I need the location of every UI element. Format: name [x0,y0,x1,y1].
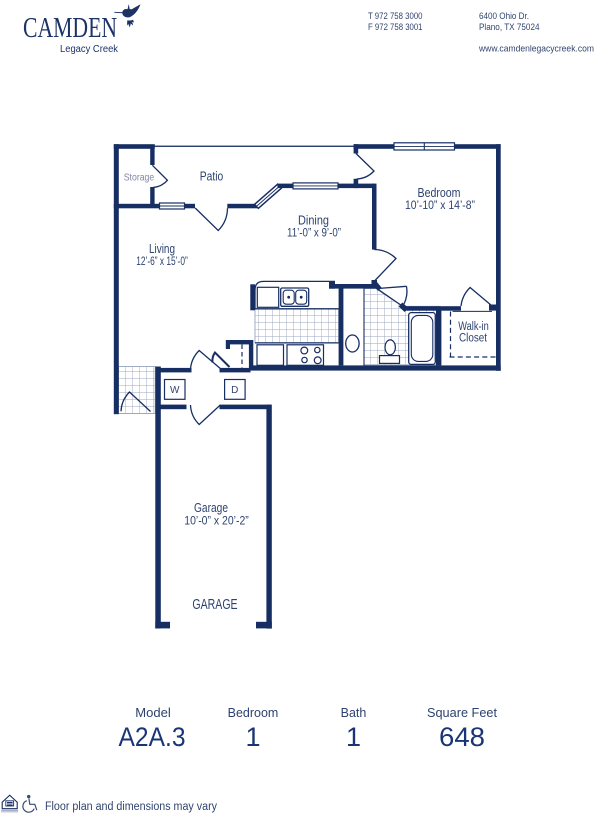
svg-text:T 972 758 3000: T 972 758 3000 [368,11,423,22]
svg-text:GARAGE: GARAGE [192,596,237,613]
svg-text:W: W [170,385,180,396]
svg-text:6400 Ohio Dr.: 6400 Ohio Dr. [479,11,529,22]
svg-text:Legacy Creek: Legacy Creek [60,44,119,55]
svg-text:F 972 758 3001: F 972 758 3001 [368,22,423,33]
svg-text:Model: Model [135,706,171,720]
svg-text:Bedroom: Bedroom [228,706,279,720]
svg-text:Walk-in: Walk-in [458,321,489,333]
svg-text:1: 1 [245,722,260,752]
svg-text:11’-0” x 9’-0”: 11’-0” x 9’-0” [287,228,341,240]
svg-text:Bath: Bath [341,706,367,720]
svg-text:10’-10” x 14’-8”: 10’-10” x 14’-8” [405,200,475,212]
svg-text:Floor plan and dimensions may: Floor plan and dimensions may vary [45,801,217,813]
svg-text:CAMDEN: CAMDEN [23,12,117,44]
svg-text:Bedroom: Bedroom [418,186,461,200]
svg-text:10’-0” x 20’-2”: 10’-0” x 20’-2” [184,516,249,528]
svg-text:D: D [231,385,238,396]
svg-text:648: 648 [439,722,485,752]
svg-text:Patio: Patio [200,170,224,184]
svg-text:Plano, TX 75024: Plano, TX 75024 [479,22,540,33]
svg-text:Square Feet: Square Feet [427,706,498,720]
svg-text:Living: Living [149,242,175,256]
svg-text:1: 1 [346,722,361,752]
svg-text:Dining: Dining [298,214,329,228]
svg-text:www.camdenlegacycreek.com: www.camdenlegacycreek.com [478,44,594,55]
svg-text:Storage: Storage [124,173,155,184]
svg-text:Garage: Garage [194,501,228,515]
svg-text:A2A.3: A2A.3 [119,722,186,752]
svg-text:Closet: Closet [459,333,488,345]
svg-text:12’-6” x 15’-0”: 12’-6” x 15’-0” [136,256,188,268]
